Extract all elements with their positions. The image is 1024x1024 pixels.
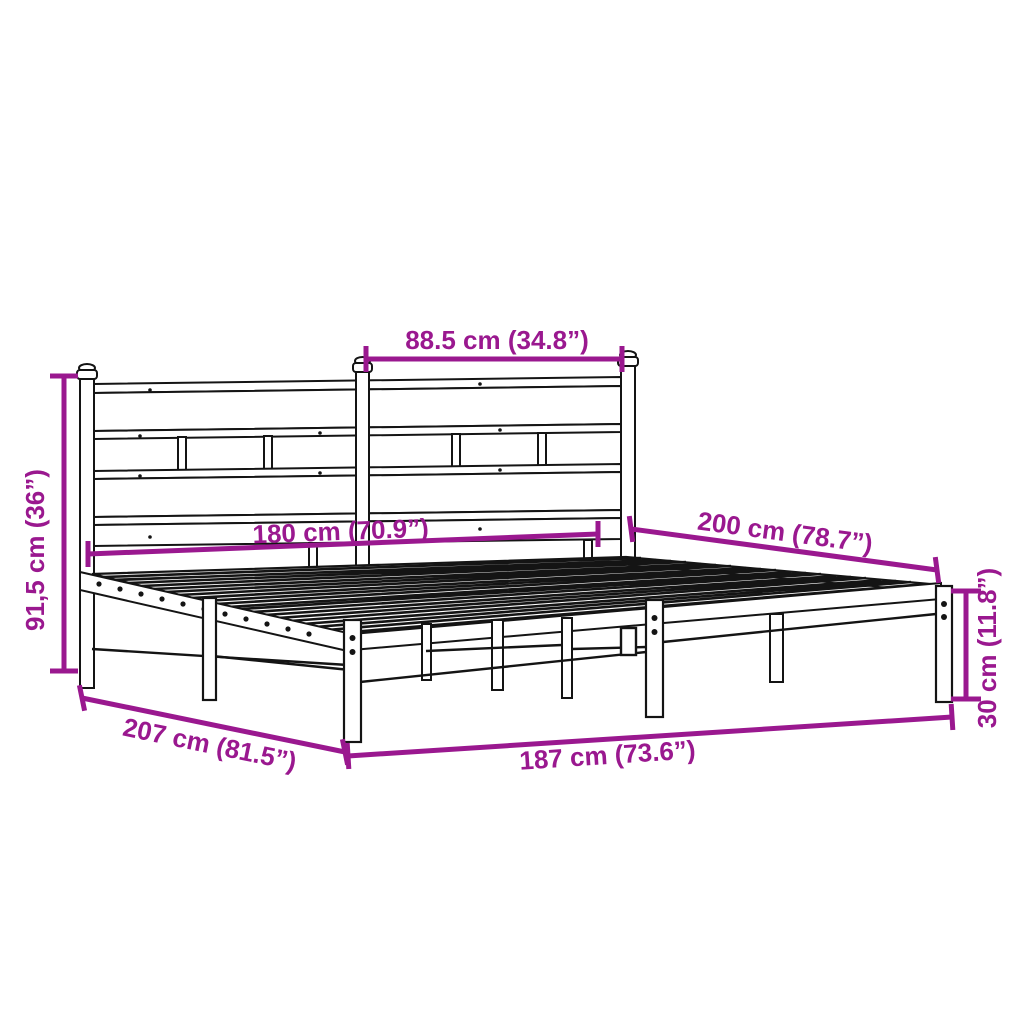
headboard-spacer bbox=[538, 433, 546, 467]
dimension-label: 30 cm (11.8”) bbox=[972, 568, 1002, 728]
leg bbox=[492, 620, 503, 690]
leg bbox=[203, 598, 216, 700]
leg bbox=[770, 614, 783, 682]
dimension-tick bbox=[79, 685, 84, 710]
dimension-tick bbox=[629, 516, 632, 542]
brace-bracket bbox=[621, 628, 636, 655]
headboard-spacer bbox=[264, 436, 272, 470]
leg bbox=[562, 618, 572, 698]
headboard-spacer bbox=[178, 437, 186, 471]
dimension-tick bbox=[935, 557, 938, 583]
headboard-right-post bbox=[621, 365, 635, 578]
bed-frame-dimension-diagram: 88.5 cm (34.8”) 91,5 cm (36”) 180 cm (70… bbox=[0, 0, 1024, 1024]
dimension-tick bbox=[347, 743, 349, 769]
product-dimension-diagram: 88.5 cm (34.8”) 91,5 cm (36”) 180 cm (70… bbox=[0, 0, 1024, 1024]
dim-base-height: 30 cm (11.8”) bbox=[951, 568, 1002, 728]
dimension-label: 91,5 cm (36”) bbox=[20, 469, 50, 631]
dimension-label: 88.5 cm (34.8”) bbox=[405, 325, 589, 355]
dimension-label: 187 cm (73.6”) bbox=[518, 734, 696, 775]
headboard-left-post bbox=[80, 378, 94, 688]
dim-headboard-section-width: 88.5 cm (34.8”) bbox=[366, 325, 622, 372]
dimension-tick bbox=[951, 704, 953, 730]
headboard-spacer bbox=[452, 434, 460, 468]
dimension-label: 207 cm (81.5”) bbox=[120, 712, 299, 777]
dim-headboard-height: 91,5 cm (36”) bbox=[20, 376, 78, 671]
